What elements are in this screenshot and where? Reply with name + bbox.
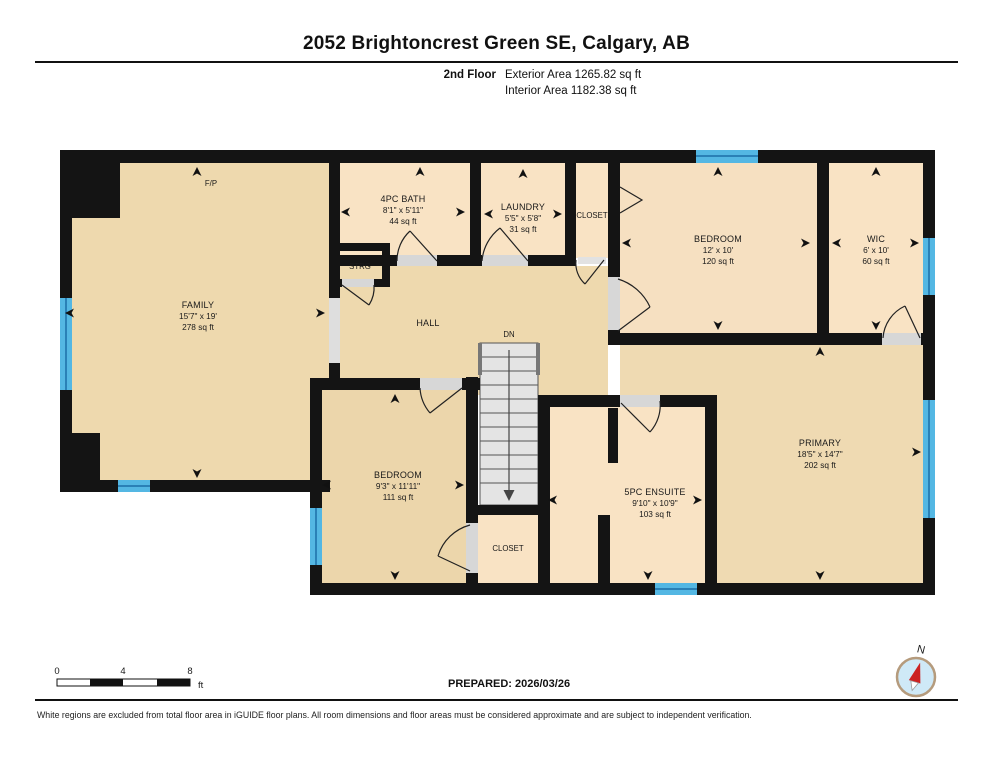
svg-text:202 sq ft: 202 sq ft bbox=[804, 460, 837, 470]
room-label-closet-lower: CLOSET bbox=[492, 544, 523, 553]
room-label-fireplace: F/P bbox=[205, 179, 217, 188]
svg-text:120 sq ft: 120 sq ft bbox=[702, 256, 735, 266]
room-label-family: FAMILY bbox=[182, 300, 215, 310]
svg-text:12' x 10': 12' x 10' bbox=[703, 245, 734, 255]
svg-text:111 sq ft: 111 sq ft bbox=[383, 492, 414, 502]
svg-text:278 sq ft: 278 sq ft bbox=[182, 322, 215, 332]
room-label-bedroom-lower: BEDROOM bbox=[374, 470, 422, 480]
room-label-bedroom-upper: BEDROOM bbox=[694, 234, 742, 244]
compass-north-label: N bbox=[916, 643, 927, 657]
compass: N bbox=[897, 643, 935, 696]
disclaimer-text: White regions are excluded from total fl… bbox=[37, 710, 752, 720]
svg-text:4: 4 bbox=[120, 666, 125, 677]
svg-text:8: 8 bbox=[187, 666, 192, 677]
svg-text:6' x 10': 6' x 10' bbox=[863, 245, 889, 255]
svg-text:9'10" x 10'9": 9'10" x 10'9" bbox=[632, 498, 678, 508]
svg-text:60 sq ft: 60 sq ft bbox=[862, 256, 890, 266]
room-label-ensuite: 5PC ENSUITE bbox=[624, 487, 685, 497]
window bbox=[696, 150, 758, 163]
window bbox=[923, 238, 935, 295]
window bbox=[118, 480, 150, 492]
floorplan-svg: F/P FAMILY 15'7" x 19' 278 sq ft 4PC BAT… bbox=[0, 0, 993, 768]
prepared-date: PREPARED: 2026/03/26 bbox=[448, 678, 570, 690]
window bbox=[923, 400, 935, 518]
svg-text:ft: ft bbox=[198, 680, 204, 691]
svg-text:18'5" x 14'7": 18'5" x 14'7" bbox=[797, 449, 843, 459]
scale-bar: 0 4 8 ft bbox=[54, 666, 203, 691]
room-label-primary: PRIMARY bbox=[799, 438, 841, 448]
room-label-closet-upper: CLOSET bbox=[576, 211, 607, 220]
stair-dn-label: DN bbox=[503, 330, 514, 339]
room-label-wic: WIC bbox=[867, 234, 885, 244]
svg-text:5'5" x 5'8": 5'5" x 5'8" bbox=[505, 213, 541, 223]
window bbox=[310, 508, 322, 565]
staircase bbox=[478, 343, 540, 505]
footer-divider bbox=[35, 699, 958, 701]
svg-text:31 sq ft: 31 sq ft bbox=[509, 224, 537, 234]
svg-text:15'7" x 19': 15'7" x 19' bbox=[179, 311, 217, 321]
room-label-laundry: LAUNDRY bbox=[501, 202, 545, 212]
room-label-hall: HALL bbox=[416, 318, 439, 328]
svg-text:0: 0 bbox=[54, 666, 59, 677]
window bbox=[655, 583, 697, 595]
room-label-strg: STRG bbox=[349, 262, 371, 271]
svg-text:44 sq ft: 44 sq ft bbox=[389, 216, 417, 226]
floorplan-page: { "header": { "title": "2052 Brightoncre… bbox=[0, 0, 993, 768]
svg-text:103 sq ft: 103 sq ft bbox=[639, 509, 672, 519]
svg-text:8'1" x 5'11": 8'1" x 5'11" bbox=[383, 205, 423, 215]
room-label-bath: 4PC BATH bbox=[381, 194, 426, 204]
svg-text:9'3" x 11'11": 9'3" x 11'11" bbox=[376, 481, 420, 491]
